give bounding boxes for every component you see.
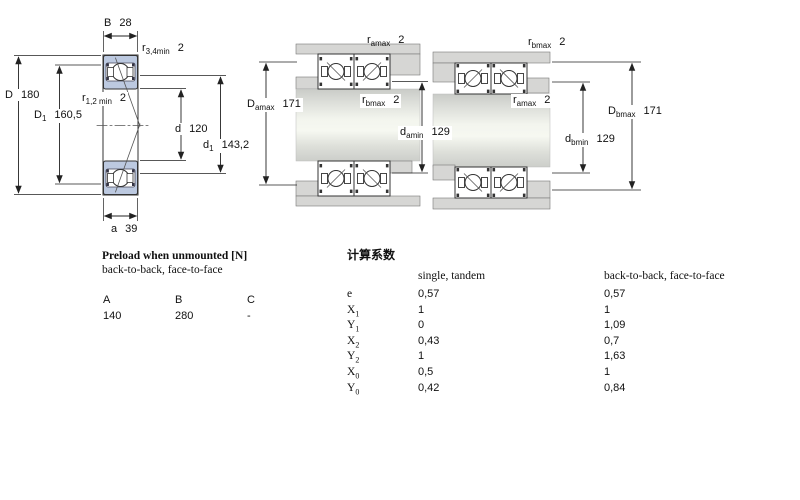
preload-value-row: 140 280 -: [102, 310, 322, 324]
dim-label-r34: r3,4min2: [142, 42, 184, 56]
bearing-datasheet-page: B28 r3,4min2 D180 D1160,5 r1,2 min2 d120…: [0, 0, 800, 500]
factor-value-single: 1: [418, 304, 424, 316]
preload-col-C: C: [247, 294, 255, 306]
factor-value-paired: 1,63: [604, 350, 625, 362]
factors-col1-header: single, tandem: [418, 270, 485, 283]
factor-value-single: 0: [418, 319, 424, 331]
factor-value-paired: 1,09: [604, 319, 625, 331]
dim-label-d1: d1143,2: [201, 139, 251, 153]
factor-value-single: 1: [418, 350, 424, 362]
factors-row-X0: X0 0,5 1: [347, 366, 767, 380]
dim-label-ramax-a: ramax2: [367, 34, 404, 48]
factors-row-Y1: Y1 0 1,09: [347, 319, 767, 333]
factors-row-e: e 0,57 0,57: [347, 288, 767, 302]
dim-label-Damax: Damax171: [245, 98, 303, 112]
preload-value-B: 280: [175, 310, 193, 322]
preload-header-row: A B C: [102, 294, 322, 308]
factor-value-paired: 0,84: [604, 382, 625, 394]
factor-value-paired: 1: [604, 304, 610, 316]
factor-value-paired: 0,57: [604, 288, 625, 300]
preload-table-subtitle: back-to-back, face-to-face: [102, 264, 223, 277]
factor-symbol: Y2: [347, 350, 359, 364]
factors-row-X2: X2 0,43 0,7: [347, 335, 767, 349]
right-diagram-dimension-lines: [552, 62, 641, 190]
factors-col2-header: back-to-back, face-to-face: [604, 270, 725, 283]
preload-value-C: -: [247, 310, 251, 322]
preload-table-title: Preload when unmounted [N]: [102, 250, 247, 263]
factor-value-paired: 1: [604, 366, 610, 378]
factor-symbol: Y0: [347, 382, 359, 396]
factor-value-single: 0,43: [418, 335, 439, 347]
dim-label-a: a39: [111, 223, 137, 235]
factors-row-Y2: Y2 1 1,63: [347, 350, 767, 364]
dim-label-rbmax-b: rbmax2: [528, 36, 565, 50]
dim-label-rbmax-a: rbmax2: [360, 94, 401, 108]
factors-row-X1: X1 1 1: [347, 304, 767, 318]
factor-symbol: X1: [347, 304, 359, 318]
mounted-pair-diagram-a: [296, 44, 420, 206]
dim-label-r12: r1,2 min2: [80, 92, 128, 106]
factor-value-paired: 0,7: [604, 335, 619, 347]
factors-table-title: 计算系数: [347, 249, 395, 262]
preload-value-A: 140: [103, 310, 121, 322]
dim-label-dbmin: dbmin129: [563, 133, 617, 147]
factor-value-single: 0,5: [418, 366, 433, 378]
dim-label-D: D180: [3, 89, 41, 101]
preload-col-B: B: [175, 294, 182, 306]
dim-label-B: B28: [104, 17, 132, 29]
dim-label-Dbmax: Dbmax171: [606, 105, 664, 119]
preload-col-A: A: [103, 294, 110, 306]
factor-symbol: e: [347, 288, 352, 302]
factor-symbol: Y1: [347, 319, 359, 333]
factor-value-single: 0,57: [418, 288, 439, 300]
dim-label-D1: D1160,5: [32, 109, 84, 123]
factor-symbol: X2: [347, 335, 359, 349]
single-bearing-cross-section-diagram: [97, 55, 149, 195]
factors-row-Y0: Y0 0,42 0,84: [347, 382, 767, 396]
factor-value-single: 0,42: [418, 382, 439, 394]
factor-symbol: X0: [347, 366, 359, 380]
dim-label-ramax-b: ramax2: [511, 94, 552, 108]
dim-label-damin: damin129: [398, 126, 452, 140]
dim-label-d: d120: [173, 123, 209, 135]
